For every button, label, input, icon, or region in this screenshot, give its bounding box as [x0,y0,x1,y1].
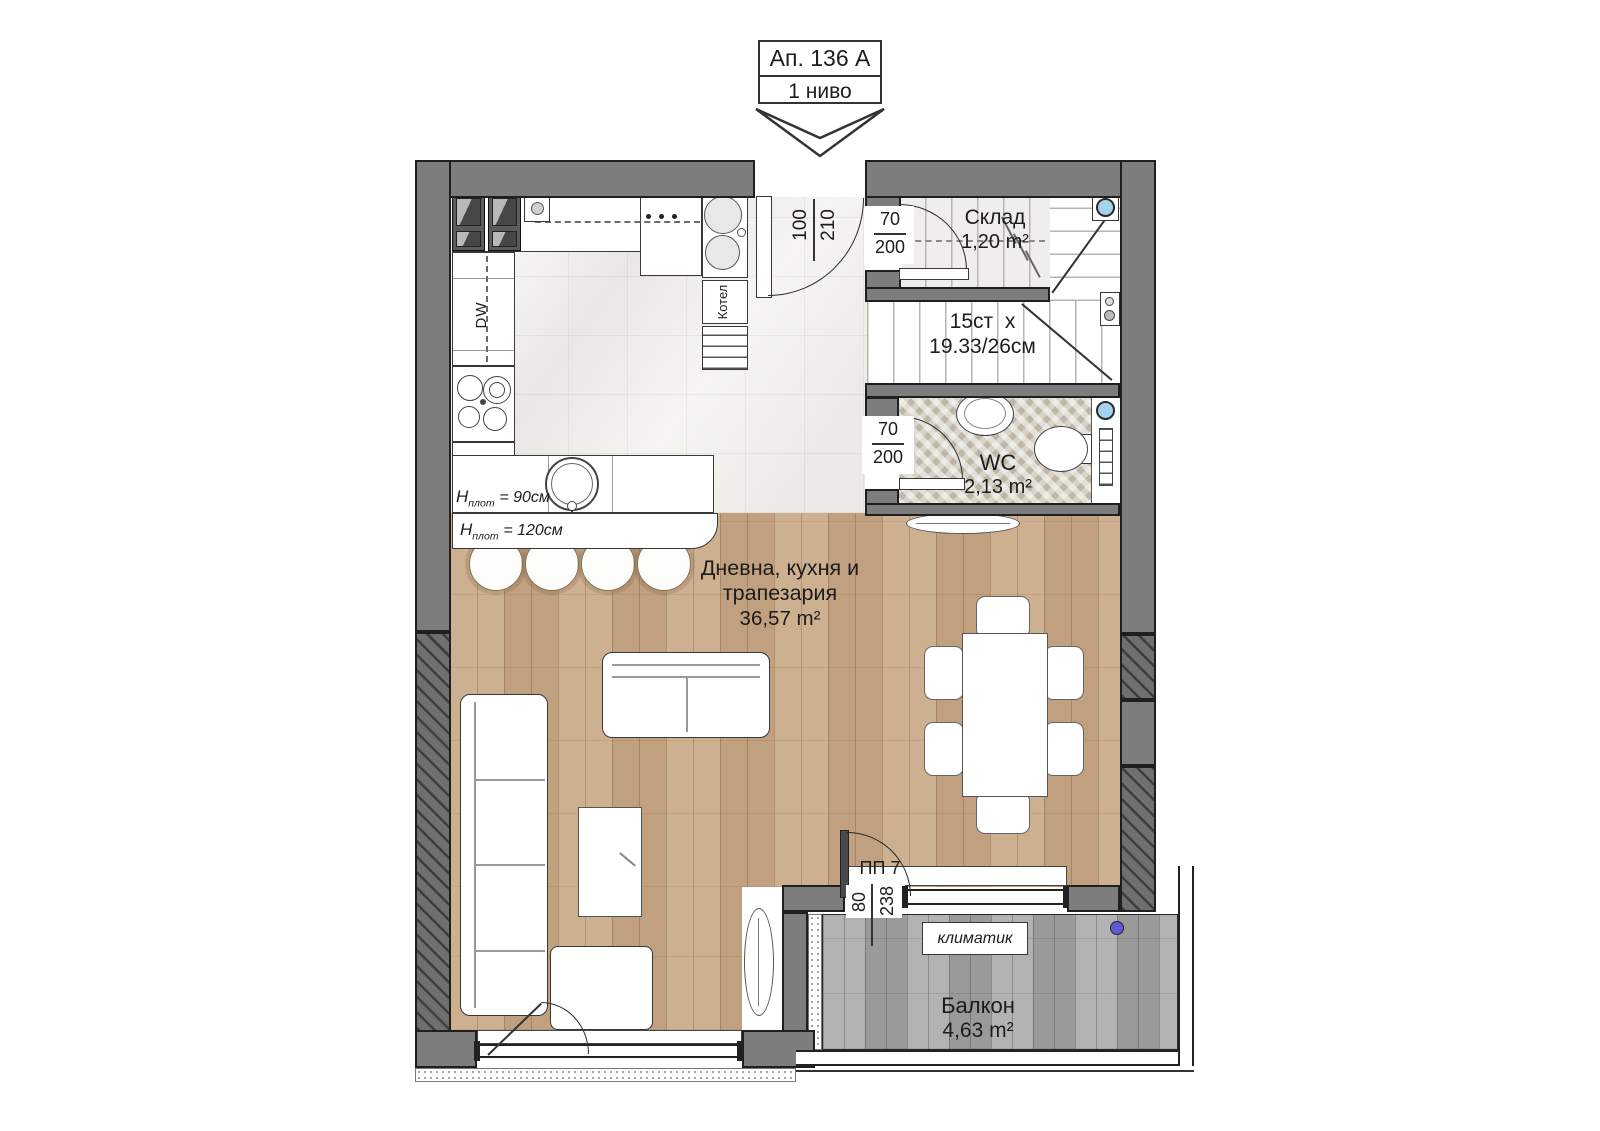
storage-dim-line [874,233,906,235]
counter-dot [659,214,664,219]
cabinet-divider [453,350,514,351]
cabinet-divider [453,278,514,279]
window-end-cap [737,1041,743,1061]
kitchen-corner-cabinet [640,194,702,276]
burner-icon [483,407,507,431]
wall-right-upper [1120,160,1156,634]
cooktop-knob-icon [480,399,486,405]
dining-table [962,633,1048,797]
wall-storage-bottom [865,287,1050,302]
upper-cabinet-dashed-line [535,221,700,223]
wall-top-left [415,160,755,198]
balcony-window [905,889,1067,905]
console-decor-vein [916,523,1010,524]
sink-bowl [705,235,740,270]
living-room-area: 36,57 m² [660,607,900,631]
wc-label: WC 2,13 m² [935,450,1061,500]
dining-chair [924,722,964,776]
floor-plan: Котел DW Hплот = 90см Hплот = 120см [0,0,1600,1131]
sofa-back-line [474,702,476,1008]
living-room-name-line2: трапезария [660,581,900,606]
fridge [452,194,485,251]
balcony-door-width-dim: 80 [849,880,867,924]
wall-right-middle [1120,700,1156,766]
stairs-count: 15ст х [900,310,1065,335]
louver-grille [702,326,748,370]
balcony-railing-right [1178,866,1194,1066]
sofa-cushion-line [475,779,545,781]
wall-top-right [865,160,1156,198]
balcony-label: Балкон 4,63 m² [898,993,1058,1044]
wall-corner-bottom-left [415,1030,477,1068]
panel-knob-icon [1105,297,1114,306]
balcony-name: Балкон [898,993,1058,1019]
dining-chair [924,646,964,700]
storage-room-label: Склад 1,20 m² [925,206,1065,254]
ac-unit: климатик [922,922,1028,955]
wall-right-lower-hatched [1120,766,1156,912]
sofa-two-seat-back-line [612,664,760,666]
balcony-area: 4,63 m² [898,1019,1058,1044]
dishwasher-label: DW [473,293,493,337]
storage-room-name: Склад [925,206,1065,231]
balcony-railing-bottom [796,1050,1194,1066]
ac-unit-label: климатик [937,930,1012,948]
entrance-arrow-icon [752,106,888,162]
counter-90-label: Hплот = 90см [456,487,616,510]
sink-bowl [704,196,742,234]
wc-sink-basin [964,398,1006,429]
wc-area: 2,13 m² [935,476,1061,500]
towel-radiator [1099,428,1113,486]
wc-name: WC [935,450,1061,476]
freezer [488,194,521,251]
storage-door-width-dim: 70 [872,209,908,230]
burner-icon [457,375,483,401]
plant-decor-leaf [744,908,774,1016]
living-room-name-line1: Дневна, кухня и [660,556,900,581]
counter-dot [646,214,651,219]
bottom-window [477,1044,742,1058]
entrance-width-dim: 100 [790,203,810,247]
wall-balcony-left [782,912,808,1032]
drain-icon [1110,921,1124,935]
balcony-door-dim-line [871,884,873,946]
wall-left-lower-hatched [415,632,451,1032]
sofa-cushion-line [475,864,545,866]
dining-chair [1044,646,1084,700]
balcony-railing-outer-line [796,1070,1194,1072]
level-label: 1 ниво [760,77,880,106]
window-end-cap [1063,886,1069,908]
dining-chair [976,792,1030,834]
wall-wc-top [865,383,1120,398]
burner-icon [458,406,480,428]
vent-icon [1096,401,1115,420]
counter-120-label: Hплот = 120см [460,520,630,543]
stairs-dimensions: 19.33/26см [900,335,1065,360]
bottom-insulation-band [415,1068,796,1082]
entrance-dim-line [813,199,815,261]
sofa-two-seat-divider [686,678,688,732]
wall-balcony-window-right [1067,885,1120,912]
vent-icon [1096,198,1115,217]
burner-inner-ring [489,382,505,398]
wall-wc-bottom [865,503,1120,516]
bottom-window-sill [477,1030,742,1044]
fixture-knob-icon [531,202,544,215]
counter-dot [672,214,677,219]
dining-chair [976,596,1030,638]
boiler-label: Котел [715,280,735,324]
dining-chair [1044,722,1084,776]
wc-dim-line [872,443,904,445]
title-box: Ап. 136 А 1 ниво [758,40,882,104]
wall-left-upper [415,160,451,632]
stairs-label: 15ст х 19.33/26см [900,310,1065,360]
wc-door-width-dim: 70 [870,419,906,440]
apartment-number: Ап. 136 А [760,42,880,77]
storage-room-area: 1,20 m² [925,231,1065,255]
storage-door-height-dim: 200 [866,237,914,258]
sofa-cushion-line [475,950,545,952]
balcony-door-height-dim: 238 [877,877,895,925]
wc-door-height-dim: 200 [864,447,912,468]
storage-door-leaf [899,268,969,280]
faucet-icon [737,228,746,237]
wall-right-column-hatched [1120,634,1156,700]
entrance-height-dim: 210 [818,203,838,247]
living-room-label: Дневна, кухня и трапезария 36,57 m² [660,556,900,631]
plant-decor-vein [758,918,759,1006]
window-end-cap [474,1041,480,1061]
panel-knob-icon [1104,310,1115,321]
wall-balcony-door-left [782,885,845,912]
